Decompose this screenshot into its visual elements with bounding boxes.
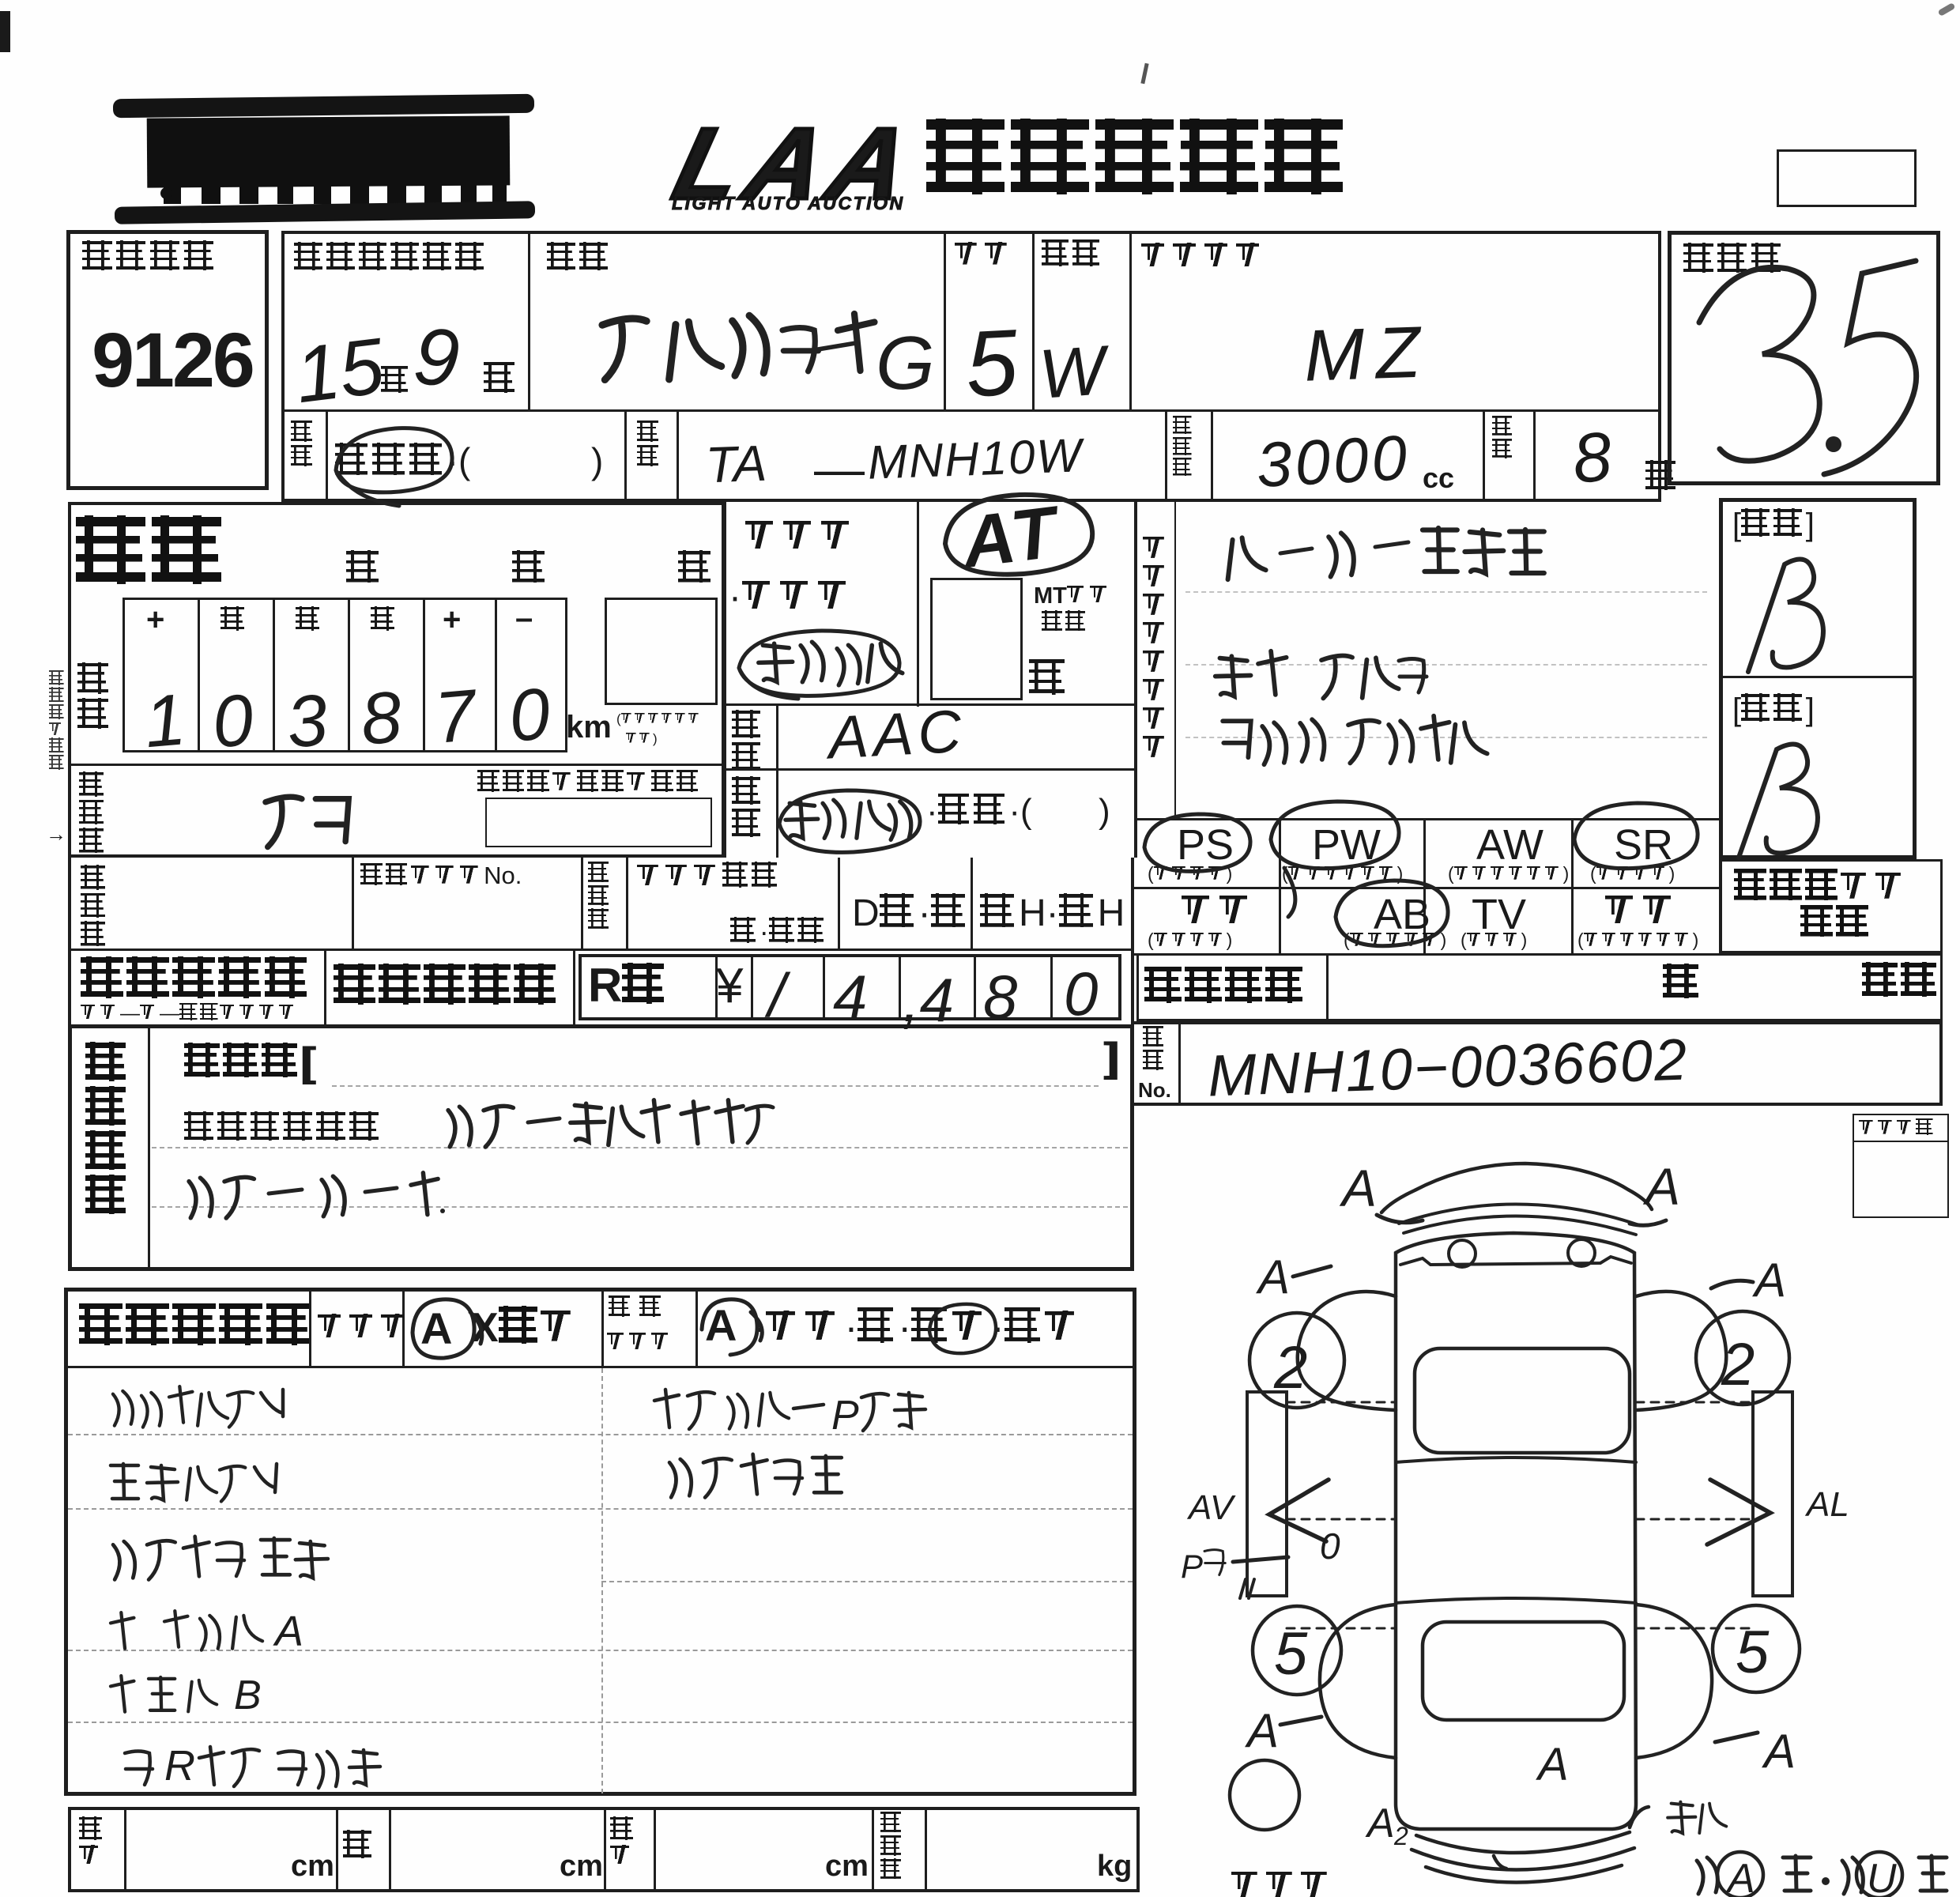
svg-text:A: A [1256, 1250, 1290, 1303]
svg-text:P: P [831, 1393, 859, 1439]
svg-text:2: 2 [1393, 1822, 1408, 1850]
svg-text:P: P [1181, 1548, 1203, 1585]
svg-text:4: 4 [833, 962, 867, 1031]
svg-text:U: U [1867, 1856, 1897, 1897]
svg-text:1: 1 [141, 679, 189, 763]
svg-text:A: A [1725, 1856, 1755, 1897]
svg-text:8: 8 [983, 962, 1017, 1031]
svg-text:AV: AV [1186, 1488, 1236, 1527]
svg-text:0: 0 [1064, 959, 1098, 1028]
svg-text:,4: ,4 [903, 965, 954, 1035]
svg-text:A: A [273, 1608, 303, 1655]
svg-text:A: A [1762, 1725, 1796, 1778]
svg-text:G: G [876, 321, 935, 405]
svg-text:A: A [1536, 1739, 1569, 1790]
svg-text:A: A [1365, 1801, 1395, 1846]
svg-text:0: 0 [209, 680, 257, 764]
svg-text:3: 3 [284, 680, 331, 764]
svg-text:2: 2 [1721, 1331, 1755, 1398]
svg-text:A: A [1642, 1157, 1680, 1216]
svg-text:A: A [1339, 1159, 1377, 1217]
svg-text:A: A [1245, 1704, 1279, 1757]
svg-text:7: 7 [432, 675, 481, 759]
svg-text:/: / [764, 960, 791, 1030]
svg-text:B: B [234, 1673, 262, 1718]
svg-text:0: 0 [506, 673, 553, 757]
svg-text:R: R [164, 1742, 195, 1790]
svg-text:A: A [1752, 1254, 1786, 1307]
svg-text:5: 5 [1274, 1620, 1308, 1688]
svg-text:8: 8 [357, 677, 405, 760]
svg-text:0: 0 [1320, 1526, 1340, 1567]
svg-text:AL: AL [1804, 1485, 1849, 1524]
